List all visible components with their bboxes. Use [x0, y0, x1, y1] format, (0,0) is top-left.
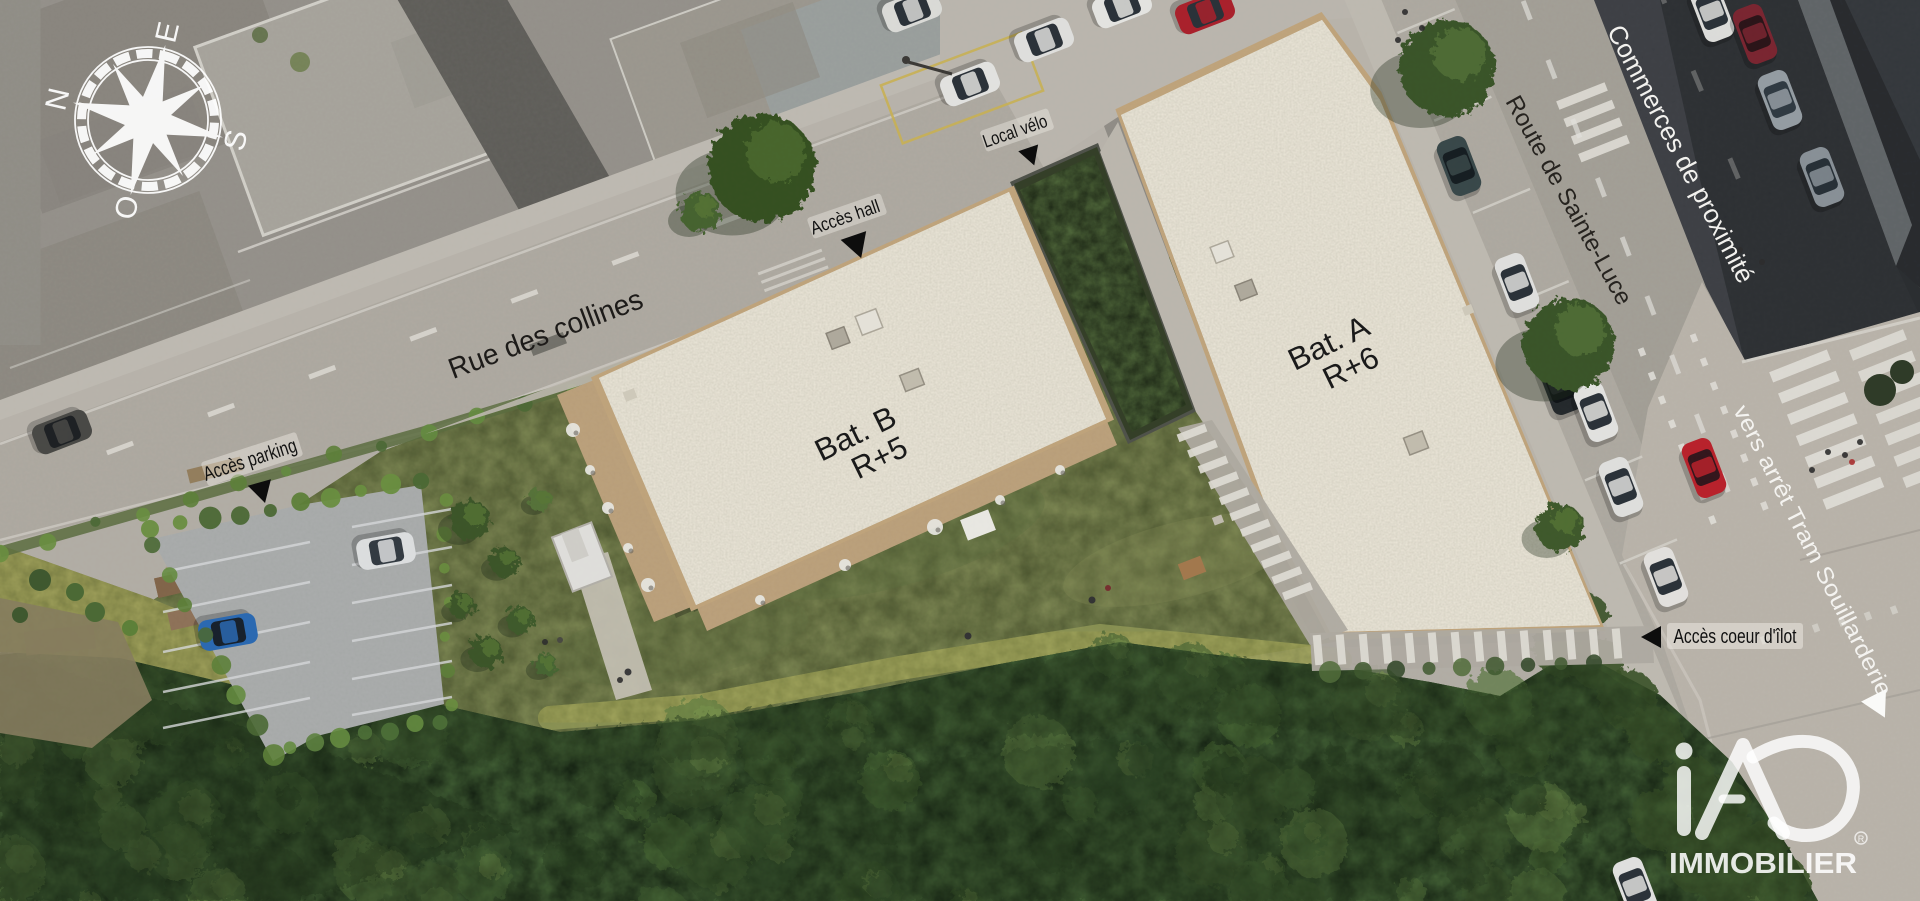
svg-text:IMMOBILIER: IMMOBILIER [1669, 848, 1857, 880]
svg-text:R: R [1858, 834, 1865, 844]
svg-text:Accès coeur d'îlot: Accès coeur d'îlot [1674, 626, 1797, 648]
